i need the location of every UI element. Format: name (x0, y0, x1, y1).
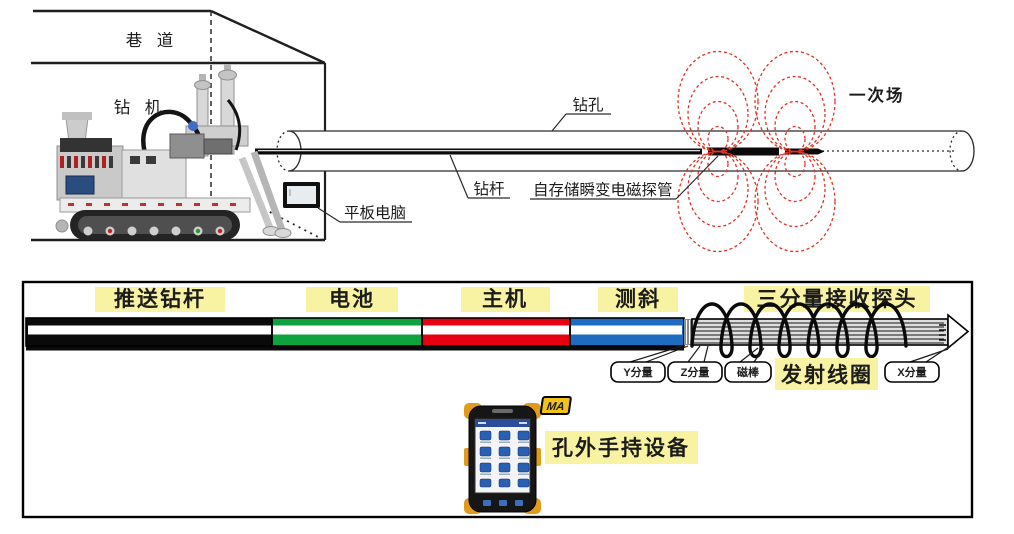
phone-app-icon-label (518, 474, 529, 476)
transmit-coil-label: 发射线圈 (780, 363, 873, 387)
component-x-label: X分量 (897, 365, 926, 379)
rig-engine-top (60, 138, 112, 152)
phone-status-mark (478, 422, 486, 424)
phone-app-icon (499, 479, 510, 487)
drill-string (255, 148, 825, 156)
rig-exhaust-top (62, 112, 92, 120)
rig-connector (67, 156, 71, 168)
drill-rod-label: 钻杆 (473, 180, 504, 198)
inclinometer-label: 测斜 (615, 287, 661, 311)
borehole-end-cap-arc (962, 131, 974, 171)
tablet-label-leader (318, 208, 340, 222)
bar-white-stripe (28, 326, 682, 335)
handheld-device-label: 孔外手持设备 (552, 436, 690, 460)
rig-vent-2 (146, 156, 156, 164)
bottom-panel: 推送钻杆 电池 主机 测斜 三分量接收探头 (23, 282, 972, 517)
phone-nav-icon (499, 500, 507, 506)
handheld-phone (464, 403, 541, 514)
rig-connector (95, 156, 99, 168)
rig-mast-cap-2 (219, 70, 237, 80)
phone-app-icon (499, 447, 510, 456)
phone-app-icon (480, 431, 491, 440)
phone-speaker (492, 409, 513, 413)
borehole-label: 钻孔 (572, 96, 604, 114)
phone-app-icon-label (518, 442, 529, 444)
roadway-label: 巷 道 (126, 31, 179, 50)
phone-app-icon (499, 431, 510, 440)
host-label: 主机 (482, 287, 528, 311)
rig-wheel-hub-red-2 (218, 229, 222, 233)
phone-nav-icon (483, 500, 491, 506)
phone-status-mark-2 (519, 422, 527, 424)
rig-display-panel (66, 176, 94, 194)
phone-app-icon (480, 479, 491, 487)
push-rod-label: 推送钻杆 (114, 287, 206, 311)
rig-connector (109, 156, 113, 168)
magnetic-rod-label: 磁棒 (737, 365, 760, 379)
phone-app-icon (499, 463, 510, 472)
component-y-label: Y分量 (623, 365, 652, 379)
phone-app-icon (518, 479, 529, 487)
rig-connector (60, 156, 64, 168)
rig-foot-2 (275, 229, 291, 238)
phone-app-icon-label (499, 458, 510, 460)
rig-logo-dot (188, 121, 198, 131)
tablet-computer (283, 182, 320, 208)
drill-rod-line (255, 149, 702, 155)
primary-field-label: 一次场 (849, 85, 905, 105)
phone-app-icon (518, 447, 529, 456)
probe-label: 自存储瞬变电磁探管 (533, 181, 673, 199)
phone-app-icon (518, 463, 529, 472)
component-z-label: Z分量 (681, 365, 710, 379)
rig-mast-cap (195, 81, 211, 90)
diagram-svg: 巷 道 钻 机 钻孔 钻杆 自存储瞬变电磁探管 平板电脑 一次场 推送钻杆 电池… (0, 0, 1014, 534)
phone-app-icon (480, 463, 491, 472)
rig-wheel-hub-red (108, 229, 112, 233)
drill-rig-illustration (56, 64, 291, 240)
rig-chuck (204, 139, 232, 154)
phone-app-icon-label (480, 474, 491, 476)
phone-app-icon (480, 447, 491, 456)
phone-app-icon-label (480, 442, 491, 444)
rig-connector (81, 156, 85, 168)
ma-badge: MA (541, 397, 571, 414)
roadway-roof-diagonal (211, 11, 325, 63)
drill-rig-label: 钻 机 (114, 98, 167, 117)
rig-rear-foot (56, 220, 68, 232)
figure-root: 巷 道 钻 机 钻孔 钻杆 自存储瞬变电磁探管 平板电脑 一次场 推送钻杆 电池… (0, 0, 1014, 534)
rig-connector (74, 156, 78, 168)
phone-app-icon-label (499, 442, 510, 444)
phone-nav-icon (515, 500, 523, 506)
phone-app-icon-label (518, 458, 529, 460)
phone-app-icon (518, 431, 529, 440)
phone-app-icon-label (480, 458, 491, 460)
rig-drill-head (170, 134, 204, 158)
rig-connector (102, 156, 106, 168)
rig-wheel-hub-green (196, 229, 200, 233)
phone-app-icon-label (499, 474, 510, 476)
rig-vent (130, 156, 140, 164)
ma-badge-text: MA (546, 401, 566, 413)
tablet-label: 平板电脑 (344, 204, 406, 222)
borehole-label-leader (552, 114, 566, 131)
rig-connector (88, 156, 92, 168)
battery-label: 电池 (329, 288, 375, 311)
tablet-screen (287, 186, 316, 204)
